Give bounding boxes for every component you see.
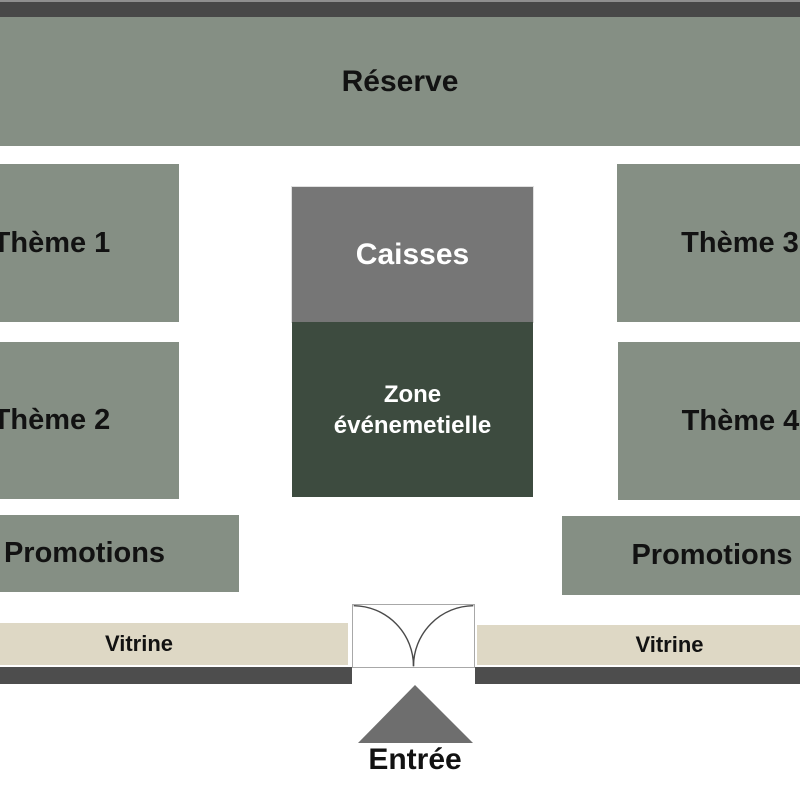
entrance-label: Entrée [340, 743, 490, 777]
zone-promotions-right-label: Promotions [631, 539, 792, 572]
vitrine-left-label: Vitrine [105, 631, 173, 657]
entrance-arrow-icon [358, 685, 473, 743]
entrance-opening [352, 666, 475, 685]
zone-evenementielle-label-line1: Zone [384, 379, 441, 410]
zone-theme-2-label: Thème 2 [0, 404, 110, 437]
zone-theme-4-label: Thème 4 [682, 405, 800, 438]
zone-promotions-left: Promotions [0, 515, 239, 592]
front-wall-right [475, 667, 800, 684]
vitrine-right: Vitrine [477, 625, 800, 665]
zone-caisses: Caisses [292, 187, 533, 322]
zone-reserve-label: Réserve [342, 65, 459, 99]
door-swing-icon [353, 605, 474, 667]
store-floor-plan: Réserve Thème 1 Thème 2 Thème 3 Thème 4 … [0, 0, 800, 800]
zone-evenementielle: Zone événemetielle [292, 322, 533, 497]
vitrine-right-label: Vitrine [635, 632, 703, 658]
zone-theme-3: Thème 3 [617, 164, 800, 322]
zone-theme-1-label: Thème 1 [0, 227, 110, 260]
zone-caisses-label: Caisses [356, 238, 469, 272]
vitrine-left: Vitrine [0, 623, 348, 665]
zone-promotions-right: Promotions [562, 516, 800, 595]
zone-theme-3-label: Thème 3 [681, 227, 799, 260]
zone-theme-2: Thème 2 [0, 342, 179, 499]
zone-theme-4: Thème 4 [618, 342, 800, 500]
zone-evenementielle-label-line2: événemetielle [334, 410, 491, 441]
zone-reserve: Réserve [0, 17, 800, 146]
entrance-door [353, 605, 474, 667]
front-wall-left [0, 667, 352, 684]
back-wall [0, 2, 800, 17]
zone-theme-1: Thème 1 [0, 164, 179, 322]
zone-promotions-left-label: Promotions [4, 537, 165, 570]
